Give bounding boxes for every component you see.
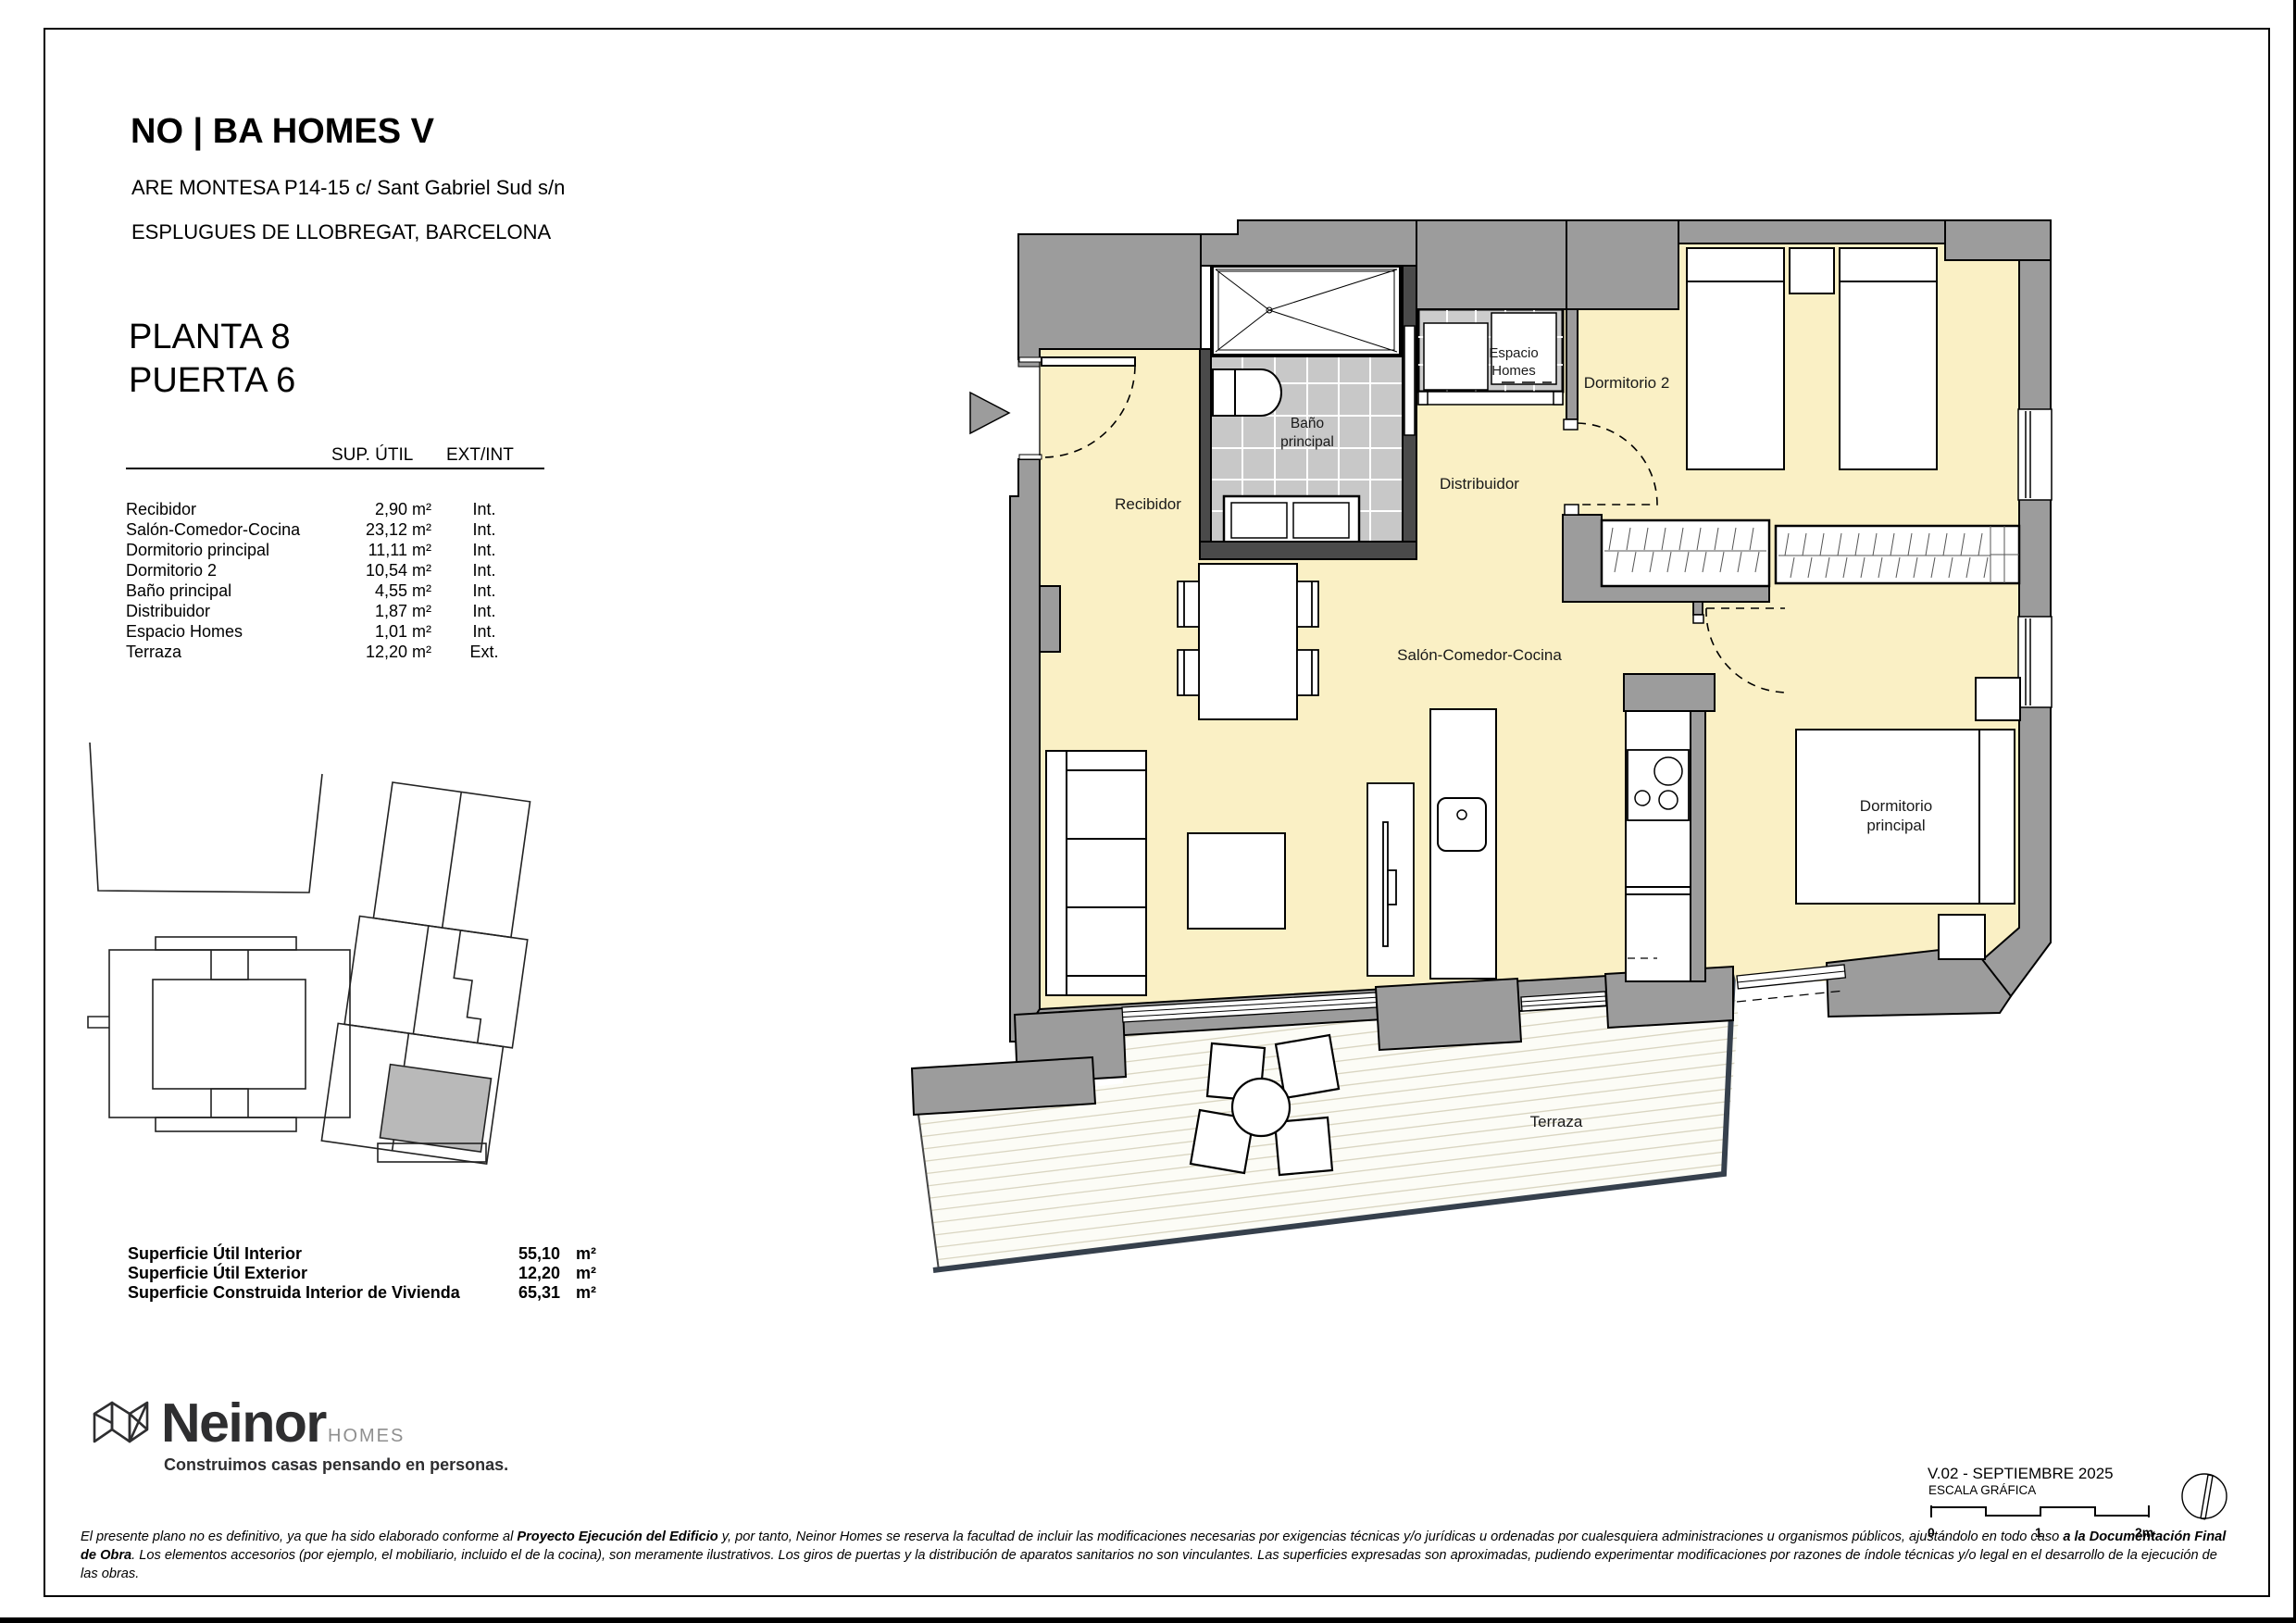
svg-text:Terraza: Terraza: [1530, 1113, 1583, 1130]
svg-text:Dormitorio: Dormitorio: [1860, 797, 1932, 815]
svg-text:Baño: Baño: [1291, 416, 1324, 431]
svg-text:principal: principal: [1280, 434, 1334, 450]
svg-text:Salón-Comedor-Cocina: Salón-Comedor-Cocina: [1397, 646, 1562, 664]
svg-text:2m: 2m: [2135, 1525, 2153, 1540]
svg-text:Recibidor: Recibidor: [1115, 495, 1181, 513]
svg-text:principal: principal: [1866, 817, 1925, 834]
svg-text:Dormitorio 2: Dormitorio 2: [1584, 374, 1670, 392]
svg-text:Distribuidor: Distribuidor: [1440, 475, 1519, 493]
svg-text:Espacio: Espacio: [1489, 345, 1538, 361]
svg-text:Homes: Homes: [1491, 363, 1536, 379]
svg-text:0: 0: [1928, 1525, 1935, 1540]
svg-text:1: 1: [2035, 1525, 2042, 1540]
